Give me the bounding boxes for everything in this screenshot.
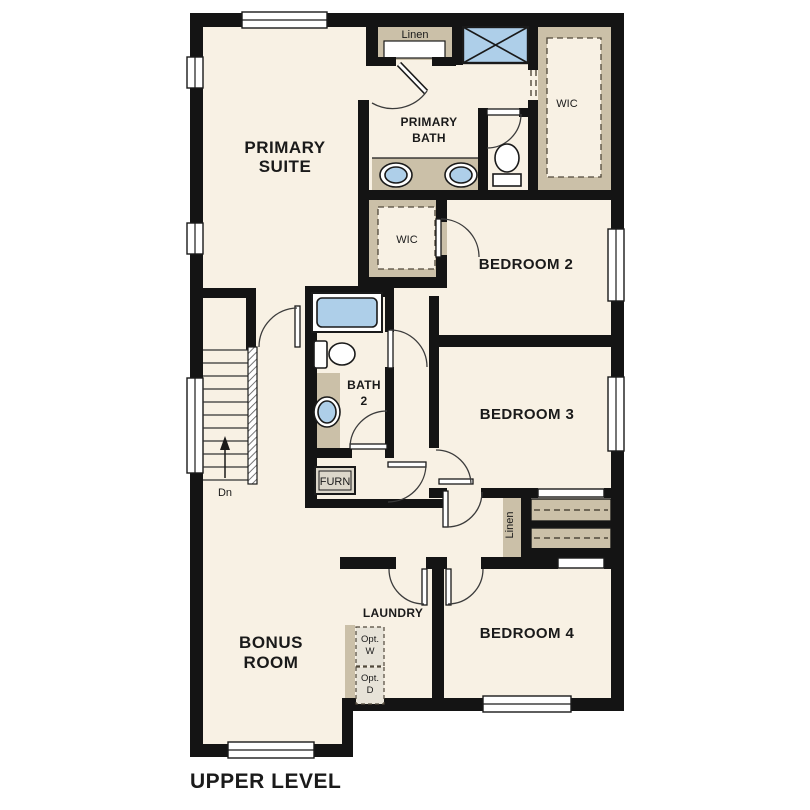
window-bedroom2-right xyxy=(608,229,624,301)
room-label-bath2-2: 2 xyxy=(361,394,368,408)
toilet-icon-primary xyxy=(493,144,521,186)
room-label-bedroom3: BEDROOM 3 xyxy=(480,406,574,423)
room-label-primary-bath-2: BATH xyxy=(412,131,446,145)
laundry-wall-strip xyxy=(345,625,355,705)
floor-plan-page: PRIMARY SUITE Linen PRIMARY BATH WIC WIC… xyxy=(0,0,810,810)
label-linen-hall: Linen xyxy=(504,512,516,539)
bathtub-icon xyxy=(312,293,382,332)
label-opt-washer-2: W xyxy=(366,646,375,657)
room-label-bedroom2: BEDROOM 2 xyxy=(479,256,573,273)
label-linen-top: Linen xyxy=(402,29,429,41)
room-label-bonus-1: BONUS xyxy=(239,633,303,652)
plan-title: UPPER LEVEL xyxy=(190,770,341,793)
room-label-primary-suite-1: PRIMARY xyxy=(244,138,325,157)
sink-icon-primary-1 xyxy=(380,163,412,187)
window-stairs-left xyxy=(187,378,203,473)
window-bedroom3-right xyxy=(608,377,624,451)
label-wic-bedroom2: WIC xyxy=(396,234,417,246)
floor-plan-drawing: PRIMARY SUITE Linen PRIMARY BATH WIC WIC… xyxy=(0,0,810,810)
window-primary-suite-left-1 xyxy=(187,57,203,88)
label-furnace: FURN xyxy=(320,476,351,488)
label-opt-washer-1: Opt. xyxy=(361,634,379,645)
room-label-bonus-2: ROOM xyxy=(244,653,299,672)
sink-icon-primary-2 xyxy=(445,163,477,187)
room-label-bedroom4: BEDROOM 4 xyxy=(480,625,575,642)
room-label-laundry: LAUNDRY xyxy=(363,606,423,620)
room-label-primary-bath-1: PRIMARY xyxy=(401,115,458,129)
bedroom3-closet-opening xyxy=(538,489,604,497)
label-opt-dryer-1: Opt. xyxy=(361,673,379,684)
label-wic-primary: WIC xyxy=(556,98,577,110)
window-bedroom4-bottom xyxy=(483,696,571,712)
stair-railing xyxy=(248,347,257,484)
bedroom4-closet-opening xyxy=(558,558,604,568)
window-primary-suite-top xyxy=(242,12,327,28)
label-stairs-dn: Dn xyxy=(218,487,232,499)
sink-icon-bath2 xyxy=(314,397,340,427)
window-bonus-bottom xyxy=(228,742,314,758)
linen-shelf xyxy=(384,41,445,58)
room-label-primary-suite-2: SUITE xyxy=(259,157,312,176)
window-primary-suite-left-2 xyxy=(187,223,203,254)
shower-icon xyxy=(463,27,528,63)
label-opt-dryer-2: D xyxy=(367,685,374,696)
room-label-bath2-1: BATH xyxy=(347,378,381,392)
